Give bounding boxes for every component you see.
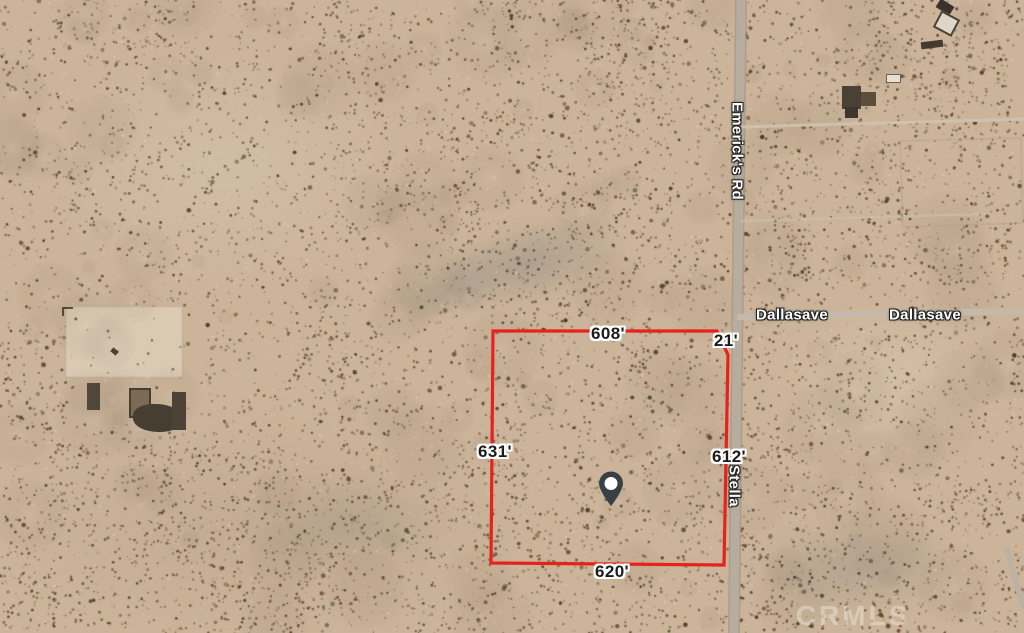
terrain-patch: [388, 236, 521, 333]
building: [921, 40, 944, 50]
trail: [741, 214, 985, 221]
road-diagonal: [1006, 547, 1024, 609]
map-container[interactable]: 608' 21' 631' 612' 620' Emerick's Rd Ste…: [0, 0, 1024, 633]
road-emericks-stella: [734, 0, 741, 633]
fence-corner: [62, 307, 73, 316]
labels-layer: 608' 21' 631' 612' 620' Emerick's Rd Ste…: [0, 0, 1024, 633]
building: [933, 10, 960, 37]
location-pin-icon[interactable]: [591, 470, 631, 510]
roads-layer: [0, 0, 1024, 633]
road-dallasave: [737, 311, 1024, 317]
road-edge: [734, 0, 741, 633]
measurement-top: 608': [591, 324, 625, 344]
terrain-patch: [20, 40, 420, 300]
terrain-patch: [250, 475, 450, 575]
building: [861, 92, 876, 106]
building: [886, 74, 901, 83]
measurement-east: 612': [712, 447, 746, 467]
terrain-patch: [760, 295, 1020, 465]
parcel-boundary: [491, 331, 728, 565]
vegetation-cluster: [133, 404, 183, 432]
measurement-west: 631': [478, 442, 512, 462]
terrain-patch: [0, 420, 540, 633]
building: [842, 86, 861, 109]
cleared-pad: [65, 306, 183, 378]
pin-center-dot: [605, 477, 618, 490]
road-label-dallasave-1: Dallasave: [756, 307, 828, 324]
road-label-dallasave-2: Dallasave: [889, 307, 961, 324]
building: [172, 392, 186, 430]
building: [845, 107, 858, 118]
crmls-watermark: CRMLS: [796, 600, 911, 632]
building: [129, 388, 151, 418]
building: [110, 347, 119, 355]
road-label-stella: Stella: [726, 465, 743, 507]
measurement-top-right: 21': [714, 331, 738, 351]
parcel-overlay: [0, 0, 1024, 633]
trail: [741, 119, 1024, 127]
building: [87, 383, 100, 410]
measurement-south: 620': [595, 562, 629, 582]
terrain-patches: [0, 0, 1024, 633]
fence-line: [900, 138, 1023, 227]
terrain-patch: [421, 196, 640, 328]
road-label-emericks-rd: Emerick's Rd: [729, 102, 746, 200]
structures-layer: [0, 0, 1024, 633]
terrain-speckles: [0, 0, 1024, 633]
building: [936, 0, 955, 15]
